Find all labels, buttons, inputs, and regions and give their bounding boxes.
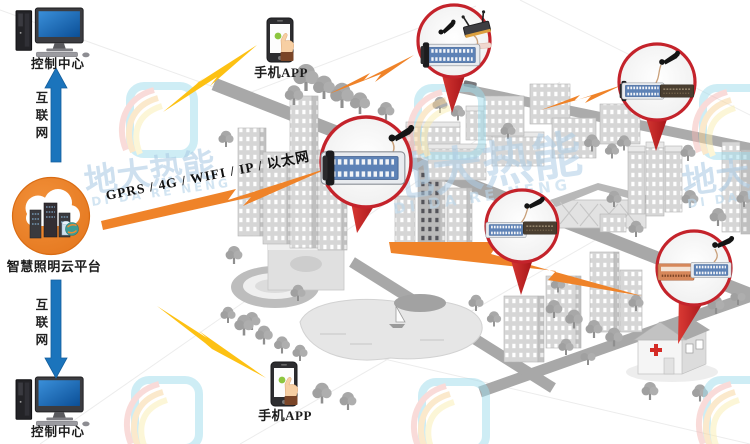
gateway-module-device [660,85,693,97]
power-module-device [658,264,694,281]
diagram-canvas: 地大热能 DI DA RE NENG 地大热能 DI DA RE NENG 地大… [0,0,750,444]
desktop-computer-icon-bottom [16,377,90,426]
red-cross-icon [654,344,658,356]
internet-arrow-up [45,68,67,162]
control-center-bottom-label: 控制中心 [14,425,102,439]
cloud-platform-icon [13,178,90,255]
device-flange [323,151,335,186]
cloud-platform-label: 智慧照明云平台 [0,260,108,275]
watermark-logo [127,380,199,444]
phone-app-top-label: 手机APP [246,66,316,81]
internet-top-label: 互联网 [33,91,47,144]
internet-bottom-label: 互联网 [33,298,47,351]
watermark-logo [699,380,750,444]
lighting-controller-device [424,44,480,66]
lightning-bolt-phone-pin1 [329,55,414,94]
gateway-module-device [523,222,556,234]
lake [300,294,482,360]
phone-app-bottom-label: 手机APP [250,409,320,424]
internet-arrow-down [45,280,67,378]
control-center-top-label: 控制中心 [14,57,102,71]
desktop-computer-icon-top [16,8,90,57]
watermark-logo [414,382,486,444]
smart-lighting-architecture-diagram: 地大热能 DI DA RE NENG 地大热能 DI DA RE NENG 地大… [0,0,750,444]
globe-icon [66,223,79,236]
lighting-controller-device [622,83,664,99]
device-flange [421,42,430,67]
smartphone-icon-bottom [271,362,298,406]
lighting-controller-device [486,222,526,238]
lighting-controller-device [691,262,731,278]
smartphone-icon-top [267,18,294,62]
